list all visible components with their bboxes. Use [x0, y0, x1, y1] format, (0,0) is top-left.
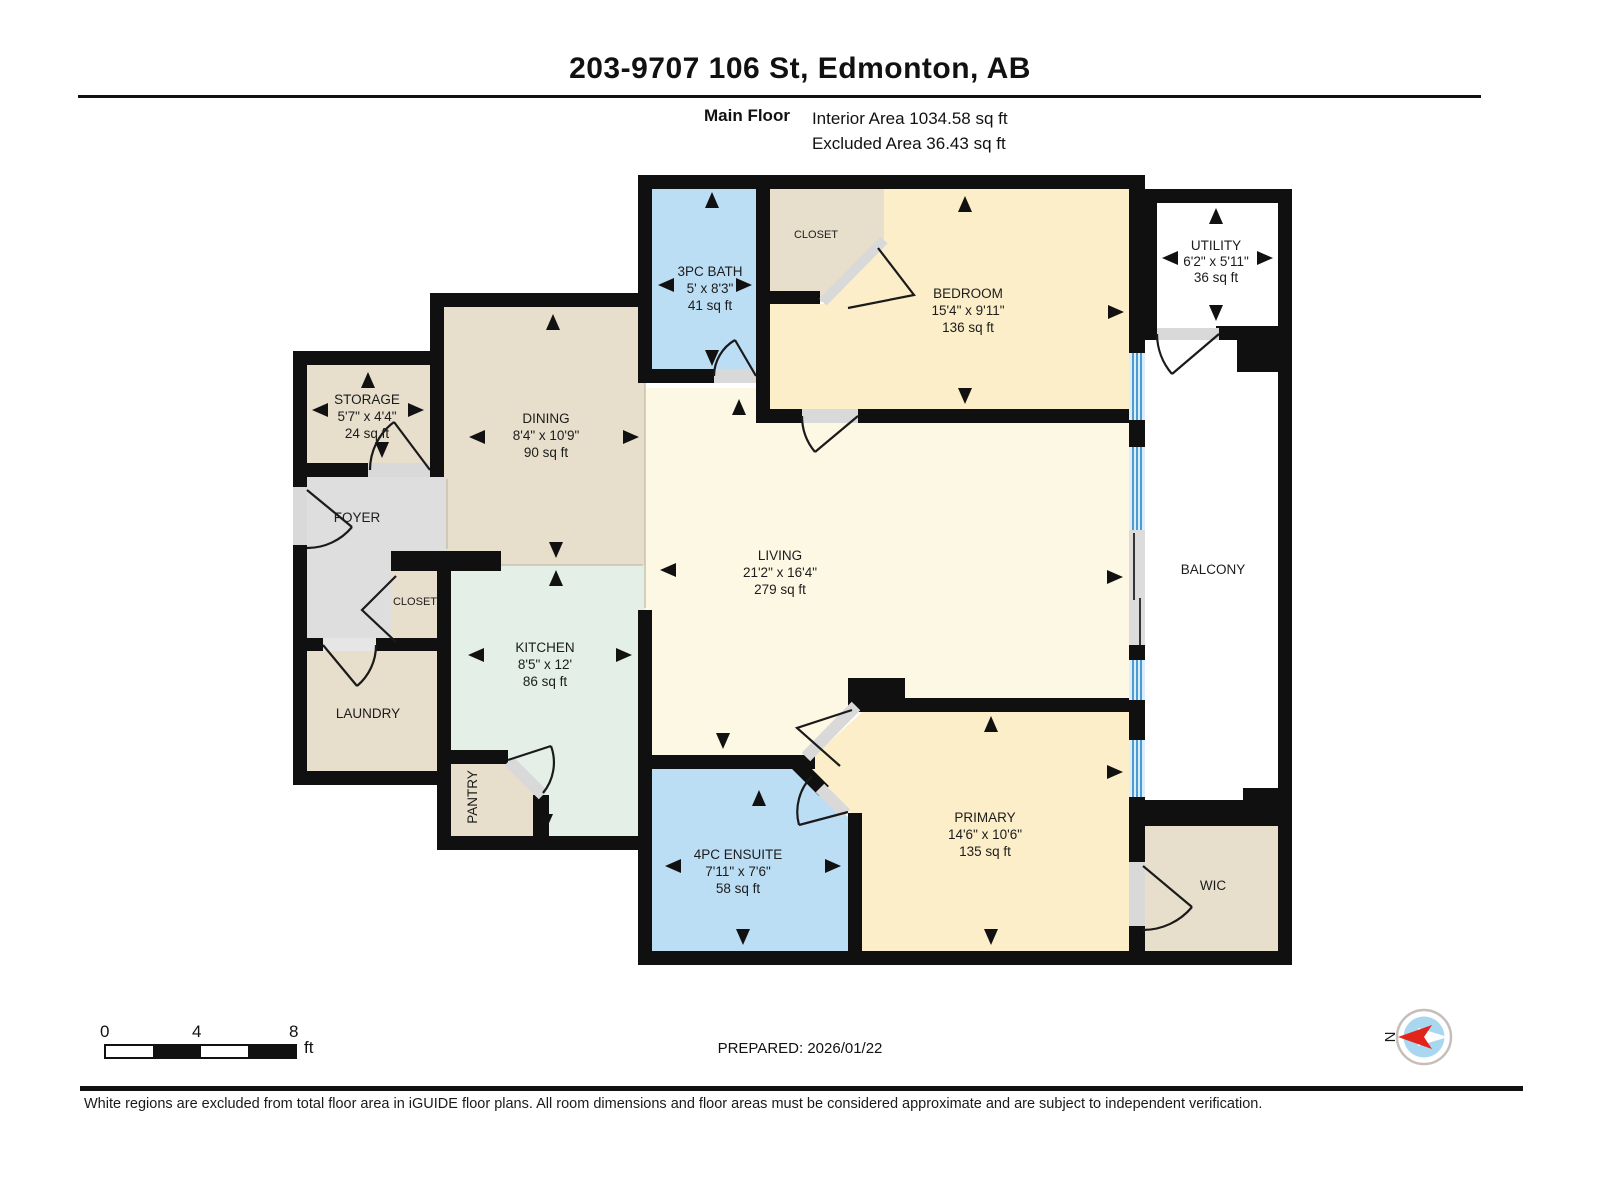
door-opening: [1157, 328, 1219, 340]
disclaimer-text: White regions are excluded from total fl…: [84, 1096, 1262, 1112]
room-label-name: 3PC BATH: [677, 264, 742, 279]
room-label-area: 36 sq ft: [1194, 270, 1239, 285]
room-label-name: BALCONY: [1181, 562, 1246, 577]
room-label-name: STORAGE: [334, 392, 400, 407]
room-label-dims: 8'5" x 12': [518, 657, 572, 672]
room-label-name: LIVING: [758, 548, 802, 563]
window: [1129, 353, 1145, 420]
room-label-name: PANTRY: [465, 770, 480, 824]
room-label-dims: 7'11" x 7'6": [705, 864, 771, 879]
room-label-name: PRIMARY: [954, 810, 1015, 825]
door-opening: [368, 463, 430, 477]
floorplan-drawing: 3PC BATH 5' x 8'3" 41 sq ft CLOSET BEDRO…: [0, 0, 1600, 1200]
sliding-door-frame: [1129, 530, 1145, 645]
window: [1129, 740, 1145, 797]
room-label-area: 90 sq ft: [524, 445, 569, 460]
room-label-dims: 8'4" x 10'9": [513, 428, 580, 443]
room-label-area: 58 sq ft: [716, 881, 761, 896]
door-opening: [802, 409, 858, 423]
room-label-dims: 15'4" x 9'11": [931, 303, 1004, 318]
room-label-name: 4PC ENSUITE: [694, 847, 783, 862]
room-label-dims: 5' x 8'3": [687, 281, 734, 296]
scale-tick-4: 4: [192, 1022, 201, 1042]
room-label-area: 41 sq ft: [688, 298, 733, 313]
door-opening: [323, 638, 376, 651]
room-label-name: CLOSET: [794, 229, 838, 241]
room-label-area: 279 sq ft: [754, 582, 806, 597]
room-label-name: FOYER: [334, 510, 381, 525]
floorplan-page: 203-9707 106 St, Edmonton, AB Main Floor…: [0, 0, 1600, 1200]
footer-divider: [80, 1086, 1523, 1091]
sliding-door: [1129, 530, 1145, 645]
room-bath: [652, 189, 756, 369]
window: [1129, 660, 1145, 700]
door-opening: [1129, 862, 1145, 926]
scale-tick-8: 8: [289, 1022, 298, 1042]
room-label-dims: 14'6" x 10'6": [948, 827, 1022, 842]
room-label-area: 86 sq ft: [523, 674, 568, 689]
room-label-dims: 21'2" x 16'4": [743, 565, 817, 580]
room-label-name: UTILITY: [1191, 238, 1241, 253]
room-label-area: 24 sq ft: [345, 426, 390, 441]
door-opening: [714, 369, 756, 383]
door-opening: [293, 487, 307, 545]
room-label-name: DINING: [522, 411, 569, 426]
room-label-area: 135 sq ft: [959, 844, 1011, 859]
window: [1129, 447, 1145, 530]
room-label-dims: 5'7" x 4'4": [337, 409, 396, 424]
room-label-area: 136 sq ft: [942, 320, 994, 335]
prepared-date: PREPARED: 2026/01/22: [0, 1040, 1600, 1057]
room-label-name: WIC: [1200, 878, 1226, 893]
room-label-name: CLOSET: [393, 596, 437, 608]
room-label-dims: 6'2" x 5'11": [1183, 254, 1249, 269]
scale-tick-0: 0: [100, 1022, 109, 1042]
room-label-name: BEDROOM: [933, 286, 1003, 301]
room-label-name: LAUNDRY: [336, 706, 400, 721]
room-label-name: KITCHEN: [515, 640, 574, 655]
